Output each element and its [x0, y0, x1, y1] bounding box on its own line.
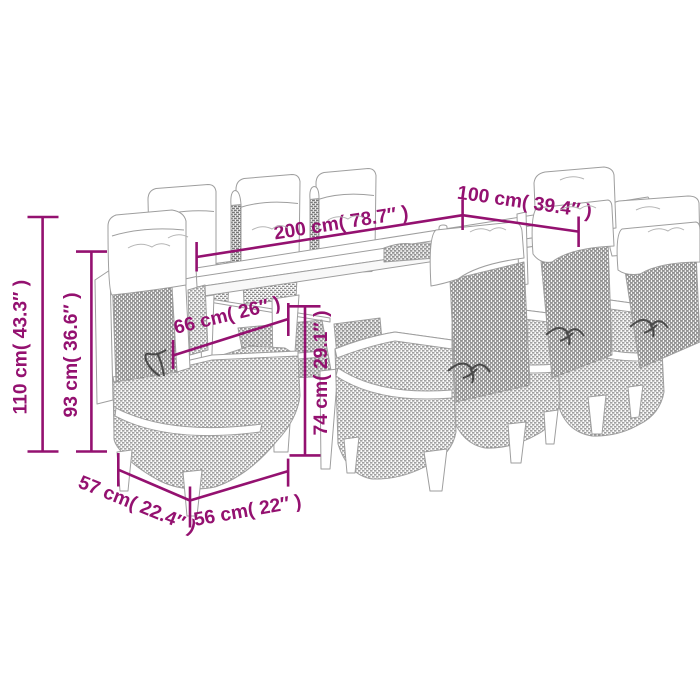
svg-text:74 cm( 29.1″ ): 74 cm( 29.1″ ): [311, 311, 332, 436]
svg-text:93 cm( 36.6″ ): 93 cm( 36.6″ ): [61, 293, 82, 418]
svg-text:56 cm( 22″ ): 56 cm( 22″ ): [192, 491, 303, 531]
svg-text:110 cm( 43.3″ ): 110 cm( 43.3″ ): [11, 280, 32, 415]
